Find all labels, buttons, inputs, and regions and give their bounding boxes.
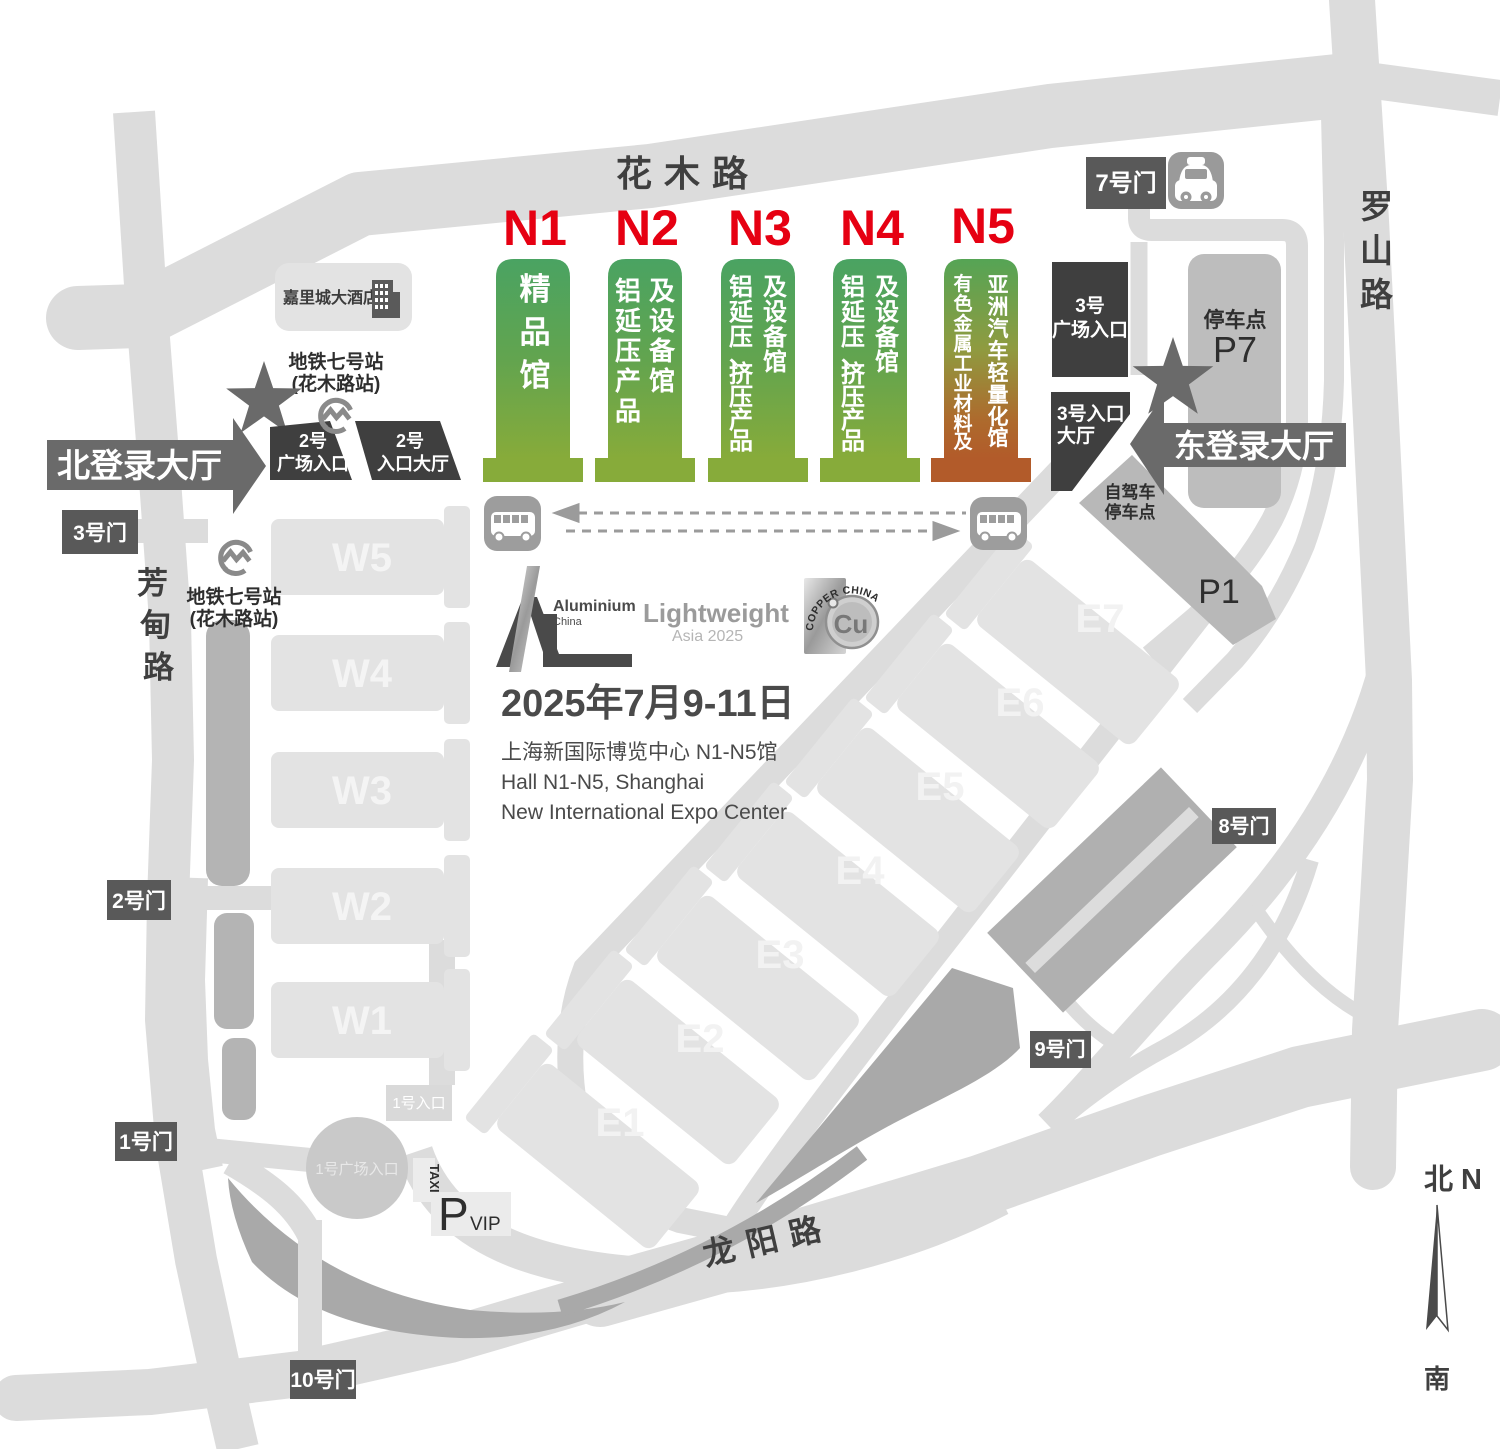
svg-text:入口大厅: 入口大厅: [377, 453, 449, 474]
svg-text:2号门: 2号门: [112, 889, 166, 913]
svg-text:北 N: 北 N: [1424, 1163, 1482, 1196]
svg-text:压: 压: [615, 336, 641, 366]
svg-text:品: 品: [520, 315, 551, 350]
svg-text:铝: 铝: [841, 274, 865, 301]
svg-text:P1: P1: [1198, 573, 1240, 611]
svg-text:品: 品: [841, 428, 865, 455]
svg-text:山: 山: [1360, 232, 1393, 269]
svg-text:馆: 馆: [875, 348, 899, 376]
svg-text:Hall N1-N5, Shanghai: Hall N1-N5, Shanghai: [501, 771, 704, 794]
svg-text:Aluminium: Aluminium: [553, 598, 636, 615]
svg-text:10号门: 10号门: [290, 1368, 355, 1392]
svg-text:P: P: [438, 1188, 469, 1240]
svg-text:1号广场入口: 1号广场入口: [315, 1161, 398, 1178]
svg-text:备: 备: [762, 323, 788, 351]
svg-text:E7: E7: [1076, 597, 1125, 641]
svg-text:设: 设: [649, 306, 675, 336]
svg-text:延: 延: [728, 299, 754, 326]
svg-text:金: 金: [952, 312, 973, 335]
svg-text:及: 及: [875, 274, 899, 301]
svg-text:备: 备: [648, 336, 676, 366]
svg-text:Asia 2025: Asia 2025: [672, 628, 743, 645]
svg-text:E1: E1: [596, 1101, 645, 1145]
svg-text:馆: 馆: [520, 358, 551, 393]
svg-text:2025年7月9-11日: 2025年7月9-11日: [501, 683, 795, 725]
svg-text:汽: 汽: [988, 317, 1009, 341]
svg-text:New International Expo Center: New International Expo Center: [501, 801, 787, 824]
svg-text:3号入口: 3号入口: [1057, 403, 1125, 425]
svg-text:广场入口: 广场入口: [277, 453, 349, 474]
svg-text:(花木路站): (花木路站): [190, 607, 279, 630]
svg-text:延: 延: [614, 306, 642, 336]
svg-text:W5: W5: [332, 536, 392, 580]
svg-text:9号门: 9号门: [1034, 1037, 1085, 1061]
svg-text:罗: 罗: [1360, 188, 1393, 225]
svg-text:W2: W2: [332, 885, 392, 929]
svg-text:N4: N4: [840, 200, 904, 256]
svg-text:产: 产: [615, 366, 641, 396]
svg-text:轻: 轻: [988, 361, 1009, 385]
svg-text:馆: 馆: [649, 366, 675, 396]
svg-text:车: 车: [988, 339, 1009, 363]
svg-text:业: 业: [953, 373, 972, 395]
svg-text:8号门: 8号门: [1218, 814, 1269, 838]
svg-text:馆: 馆: [988, 426, 1009, 450]
svg-text:2号: 2号: [299, 431, 327, 451]
svg-text:W3: W3: [332, 769, 392, 813]
svg-text:路: 路: [143, 650, 175, 685]
svg-text:E5: E5: [916, 765, 965, 809]
svg-text:P7: P7: [1213, 329, 1257, 370]
svg-text:备: 备: [874, 323, 900, 351]
svg-text:花木路: 花木路: [616, 153, 760, 194]
svg-text:及: 及: [649, 276, 675, 306]
svg-text:及: 及: [953, 432, 973, 453]
svg-text:设: 设: [875, 299, 899, 326]
svg-text:延: 延: [840, 299, 866, 326]
svg-text:亚: 亚: [988, 274, 1009, 297]
svg-text:N2: N2: [615, 200, 679, 256]
svg-text:Lightweight: Lightweight: [643, 598, 789, 628]
svg-text:E6: E6: [996, 681, 1045, 725]
svg-text:停车点: 停车点: [1105, 502, 1156, 522]
svg-text:自驾车: 自驾车: [1105, 482, 1156, 502]
svg-text:W4: W4: [332, 652, 393, 696]
svg-text:属: 属: [953, 333, 972, 355]
svg-text:N1: N1: [503, 200, 567, 256]
svg-text:材: 材: [953, 392, 972, 415]
svg-text:工: 工: [953, 354, 972, 375]
svg-text:精: 精: [520, 272, 551, 307]
svg-text:3号: 3号: [1075, 295, 1105, 317]
svg-text:W1: W1: [332, 999, 392, 1043]
svg-text:上海新国际博览中心 N1-N5馆: 上海新国际博览中心 N1-N5馆: [501, 741, 778, 764]
svg-text:2号: 2号: [396, 431, 424, 451]
svg-text:N5: N5: [951, 198, 1015, 254]
svg-text:洲: 洲: [988, 296, 1009, 319]
svg-text:E3: E3: [756, 933, 805, 977]
svg-text:甸: 甸: [140, 608, 171, 643]
svg-text:3号门: 3号门: [73, 521, 127, 545]
svg-text:东登录大厅: 东登录大厅: [1174, 428, 1334, 464]
svg-text:嘉里城大酒店: 嘉里城大酒店: [282, 288, 379, 307]
svg-text:Cu: Cu: [834, 609, 869, 639]
svg-text:色: 色: [953, 292, 972, 315]
svg-text:E2: E2: [676, 1017, 725, 1061]
svg-text:地铁七号站: 地铁七号站: [288, 350, 383, 373]
svg-text:E4: E4: [836, 849, 886, 893]
svg-text:铝: 铝: [729, 274, 753, 301]
svg-text:设: 设: [763, 299, 787, 326]
svg-text:量: 量: [988, 384, 1009, 407]
svg-text:地铁七号站: 地铁七号站: [186, 585, 281, 608]
svg-text:N3: N3: [728, 200, 792, 256]
svg-text:(花木路站): (花木路站): [292, 372, 381, 395]
svg-text:有: 有: [953, 272, 972, 295]
svg-text:南: 南: [1424, 1364, 1450, 1394]
svg-text:路: 路: [1360, 276, 1394, 313]
svg-text:化: 化: [988, 405, 1009, 429]
svg-text:及: 及: [763, 274, 787, 301]
svg-text:China: China: [553, 616, 583, 628]
svg-text:广场入口: 广场入口: [1052, 318, 1128, 341]
svg-text:7号门: 7号门: [1095, 169, 1156, 197]
svg-text:北登录大厅: 北登录大厅: [57, 447, 222, 484]
svg-text:1号入口: 1号入口: [392, 1095, 445, 1112]
svg-text:品: 品: [615, 396, 641, 426]
svg-text:VIP: VIP: [470, 1214, 501, 1235]
svg-text:1号门: 1号门: [119, 1130, 173, 1154]
svg-text:芳: 芳: [137, 566, 168, 601]
svg-text:品: 品: [729, 428, 753, 455]
svg-text:馆: 馆: [763, 348, 787, 376]
svg-text:铝: 铝: [615, 276, 641, 306]
svg-text:大厅: 大厅: [1057, 424, 1095, 447]
